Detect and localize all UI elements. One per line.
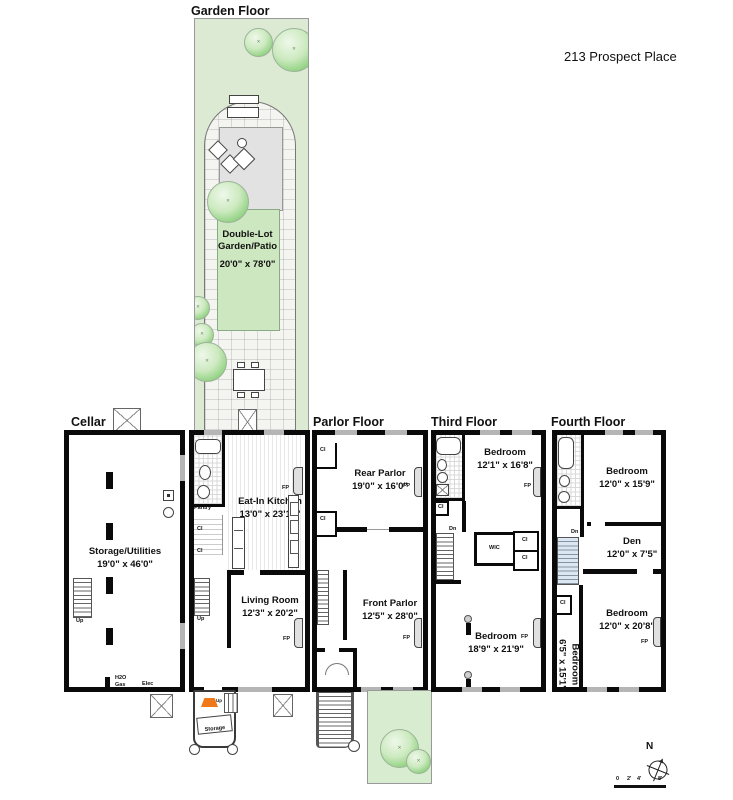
floor-plan-canvas: 213 Prospect Place Garden Floor Double-L… bbox=[0, 0, 733, 800]
water-meter-icon bbox=[163, 507, 174, 518]
toilet-icon bbox=[437, 472, 448, 483]
garden-chair bbox=[237, 392, 245, 398]
column-dash bbox=[106, 523, 113, 540]
cl-label: Cl bbox=[197, 549, 203, 555]
room-name: Eat-In Kitchen bbox=[227, 496, 313, 508]
room-dims: 19'0" x 46'0" bbox=[70, 559, 180, 571]
tree bbox=[406, 749, 431, 774]
column-dash bbox=[106, 628, 113, 645]
plan-title: 213 Prospect Place bbox=[564, 50, 677, 63]
up-label: Up bbox=[76, 619, 83, 625]
window bbox=[204, 430, 222, 435]
cellar-hatch-icon bbox=[150, 694, 173, 718]
panel-dot bbox=[167, 494, 170, 497]
fourth-stairs bbox=[557, 537, 579, 585]
dn-label: Dn bbox=[571, 530, 578, 536]
wall-stub bbox=[105, 677, 110, 687]
room-dims: 6'5" x 15'1" bbox=[556, 632, 568, 696]
closet-divider bbox=[515, 550, 537, 552]
entry-door-swing bbox=[325, 663, 337, 675]
bathtub-icon bbox=[436, 437, 461, 455]
fireplace bbox=[293, 467, 303, 495]
up-label: Up bbox=[197, 617, 204, 623]
window bbox=[462, 687, 482, 692]
wall-stub bbox=[466, 623, 471, 635]
appliance-icon bbox=[290, 520, 299, 534]
column-icon bbox=[464, 615, 472, 623]
interior-wall bbox=[389, 527, 423, 532]
fourth-floor-label: Fourth Floor bbox=[551, 416, 625, 429]
fireplace bbox=[414, 618, 422, 648]
garden-area: Double-Lot Garden/Patio 20'0" x 78'0" bbox=[194, 18, 309, 432]
scale-tick: 8' bbox=[658, 777, 662, 783]
newel-post bbox=[189, 744, 200, 755]
scale-tick: 2' bbox=[627, 777, 631, 783]
dn-label: Dn bbox=[449, 527, 456, 533]
room-dims: 12'0" x 7'5" bbox=[597, 549, 667, 561]
interior-wall bbox=[227, 570, 305, 575]
fireplace bbox=[294, 618, 303, 648]
tree bbox=[207, 181, 249, 223]
window bbox=[587, 687, 607, 692]
garden-floor-label: Garden Floor bbox=[191, 5, 269, 18]
third-stairs bbox=[436, 533, 454, 583]
parlor-floor-plan: Cl Cl Rear Parlor 19'0" x 16'0" FP Front… bbox=[312, 430, 428, 692]
wall-stub bbox=[466, 679, 471, 687]
cellar-stairs bbox=[73, 578, 92, 618]
garden-dining-table bbox=[233, 369, 265, 391]
toilet-icon bbox=[197, 485, 210, 499]
patio-table-round bbox=[237, 138, 247, 148]
window bbox=[180, 455, 185, 481]
skylight-overlay bbox=[558, 538, 578, 584]
fp-label: FP bbox=[403, 484, 410, 490]
room-dims: 12'1" x 16'8" bbox=[469, 460, 541, 472]
gas-label: Gas bbox=[115, 683, 125, 689]
lounge-chair bbox=[229, 95, 259, 104]
cl-label: Cl bbox=[522, 556, 528, 562]
window bbox=[480, 430, 500, 435]
appliance-icon bbox=[290, 502, 299, 516]
toilet-icon bbox=[558, 491, 570, 503]
room-name: Front Parlor bbox=[351, 598, 429, 610]
appliance-icon bbox=[290, 540, 299, 554]
cl-label: Cl bbox=[522, 538, 528, 544]
pantry-label: Pantry bbox=[194, 506, 211, 512]
pocket-door-line bbox=[367, 529, 389, 530]
h2o-label: H2O bbox=[115, 676, 126, 682]
closet bbox=[317, 511, 337, 537]
understoop-steps bbox=[224, 693, 238, 713]
interior-wall bbox=[337, 527, 367, 532]
column-dash bbox=[106, 577, 113, 594]
hall-wall bbox=[462, 501, 466, 532]
kitchen-appliances bbox=[288, 495, 299, 568]
scale-bar: 0 2' 4' 8' bbox=[614, 777, 668, 793]
tree bbox=[272, 28, 309, 72]
storage-utilities-room: Storage/Utilities 19'0" x 46'0" bbox=[70, 546, 180, 571]
parlor-stairs bbox=[317, 570, 329, 625]
cl-label: Cl bbox=[320, 517, 326, 523]
fireplace bbox=[533, 467, 541, 497]
window bbox=[635, 430, 653, 435]
scale-tick: 4' bbox=[637, 777, 641, 783]
window bbox=[500, 687, 520, 692]
window bbox=[385, 430, 407, 435]
fireplace bbox=[533, 618, 541, 648]
room-name: Bedroom bbox=[469, 447, 541, 459]
lounge-chair bbox=[227, 107, 259, 118]
room-name: Bedroom bbox=[588, 466, 666, 478]
bedroom-fourth-side-room: Bedroom 6'5" x 15'1" bbox=[556, 632, 581, 696]
garden-chair bbox=[251, 392, 259, 398]
garden-patio-room: Double-Lot Garden/Patio 20'0" x 78'0" bbox=[217, 229, 278, 271]
bedroom-fourth-rear-room: Bedroom 12'0" x 15'9" bbox=[588, 466, 666, 491]
cellar-plan: Storage/Utilities 19'0" x 46'0" Up H2O G… bbox=[64, 430, 185, 692]
living-room: Living Room 12'3" x 20'2" bbox=[231, 595, 309, 620]
kitchen-island bbox=[232, 517, 245, 569]
room-dims: 12'0" x 15'9" bbox=[588, 479, 666, 491]
room-name: Living Room bbox=[231, 595, 309, 607]
cl-label: Cl bbox=[560, 601, 566, 607]
hall-wall bbox=[580, 509, 584, 537]
bedroom-third-rear-room: Bedroom 12'1" x 16'8" bbox=[469, 447, 541, 472]
fp-label: FP bbox=[521, 635, 528, 641]
fourth-bathroom bbox=[557, 435, 584, 509]
room-name: Rear Parlor bbox=[341, 468, 419, 480]
window bbox=[512, 430, 532, 435]
scale-tick: 0 bbox=[616, 777, 619, 783]
newel-post bbox=[227, 744, 238, 755]
third-bathroom bbox=[436, 435, 465, 501]
sink-icon bbox=[559, 475, 570, 487]
fp-label: FP bbox=[524, 484, 531, 490]
bathtub-icon bbox=[558, 437, 574, 469]
third-floor-label: Third Floor bbox=[431, 416, 497, 429]
parlor-floor-label: Parlor Floor bbox=[313, 416, 384, 429]
up-label: Up bbox=[216, 699, 222, 704]
newel-post bbox=[348, 740, 360, 752]
storage-unit: Storage bbox=[196, 714, 233, 735]
room-dims: 20'0" x 78'0" bbox=[217, 259, 278, 271]
interior-wall bbox=[436, 580, 461, 584]
column-icon bbox=[464, 671, 472, 679]
sink-icon bbox=[199, 465, 211, 480]
tree bbox=[244, 28, 273, 57]
window bbox=[238, 687, 272, 692]
hall-wall bbox=[343, 570, 347, 640]
stoop-steps bbox=[316, 692, 354, 748]
sink-icon bbox=[437, 459, 447, 471]
counter-line bbox=[234, 548, 243, 549]
garden-chair bbox=[251, 362, 259, 368]
counter-line bbox=[234, 530, 243, 531]
room-name: Bedroom bbox=[569, 632, 581, 696]
cl-label: Cl bbox=[320, 448, 326, 454]
elec-label: Elec bbox=[142, 682, 153, 688]
fireplace bbox=[414, 467, 422, 497]
cl-label: Cl bbox=[438, 505, 444, 511]
areaway-icon bbox=[273, 694, 293, 717]
garden-bathroom bbox=[194, 435, 225, 507]
fp-label: FP bbox=[282, 486, 289, 492]
door-opening bbox=[244, 570, 260, 575]
front-yard bbox=[367, 690, 432, 784]
entry-door-swing bbox=[337, 663, 349, 675]
den-room: Den 12'0" x 7'5" bbox=[597, 536, 667, 561]
window bbox=[335, 430, 357, 435]
vestibule-wall bbox=[353, 648, 357, 687]
fp-label: FP bbox=[403, 636, 410, 642]
third-floor-plan: Bedroom 12'1" x 16'8" FP Cl Dn WIC Cl Cl… bbox=[431, 430, 546, 692]
room-name: Double-Lot Garden/Patio bbox=[217, 229, 278, 253]
cl-label: Cl bbox=[197, 527, 203, 533]
door-opening bbox=[591, 522, 605, 526]
window bbox=[605, 430, 623, 435]
storage-label: Storage bbox=[204, 725, 225, 733]
fp-label: FP bbox=[641, 640, 648, 646]
garden-stairs bbox=[194, 578, 210, 616]
fourth-floor-plan: Bedroom 12'0" x 15'9" Dn Den 12'0" x 7'5… bbox=[552, 430, 666, 692]
scale-bar-line bbox=[614, 785, 666, 788]
window bbox=[619, 687, 639, 692]
room-dims: 18'9" x 21'9" bbox=[457, 644, 535, 656]
room-name: Den bbox=[597, 536, 667, 548]
wic-label: WIC bbox=[489, 546, 500, 552]
column-dash bbox=[106, 472, 113, 489]
door-opening bbox=[325, 648, 339, 652]
garden-chair bbox=[237, 362, 245, 368]
cellar-label: Cellar bbox=[71, 416, 106, 429]
door-opening bbox=[637, 569, 653, 574]
room-name: Storage/Utilities bbox=[70, 546, 180, 558]
window bbox=[180, 623, 185, 649]
bathtub-icon bbox=[195, 439, 221, 454]
fp-label: FP bbox=[283, 637, 290, 643]
north-label: N bbox=[646, 741, 653, 752]
fireplace bbox=[653, 617, 661, 647]
window bbox=[264, 430, 284, 435]
garden-floor-plan: Pantry Cl Cl Eat-In Kitchen 13'0" x 23'1… bbox=[189, 430, 310, 692]
shower-icon bbox=[436, 484, 449, 496]
